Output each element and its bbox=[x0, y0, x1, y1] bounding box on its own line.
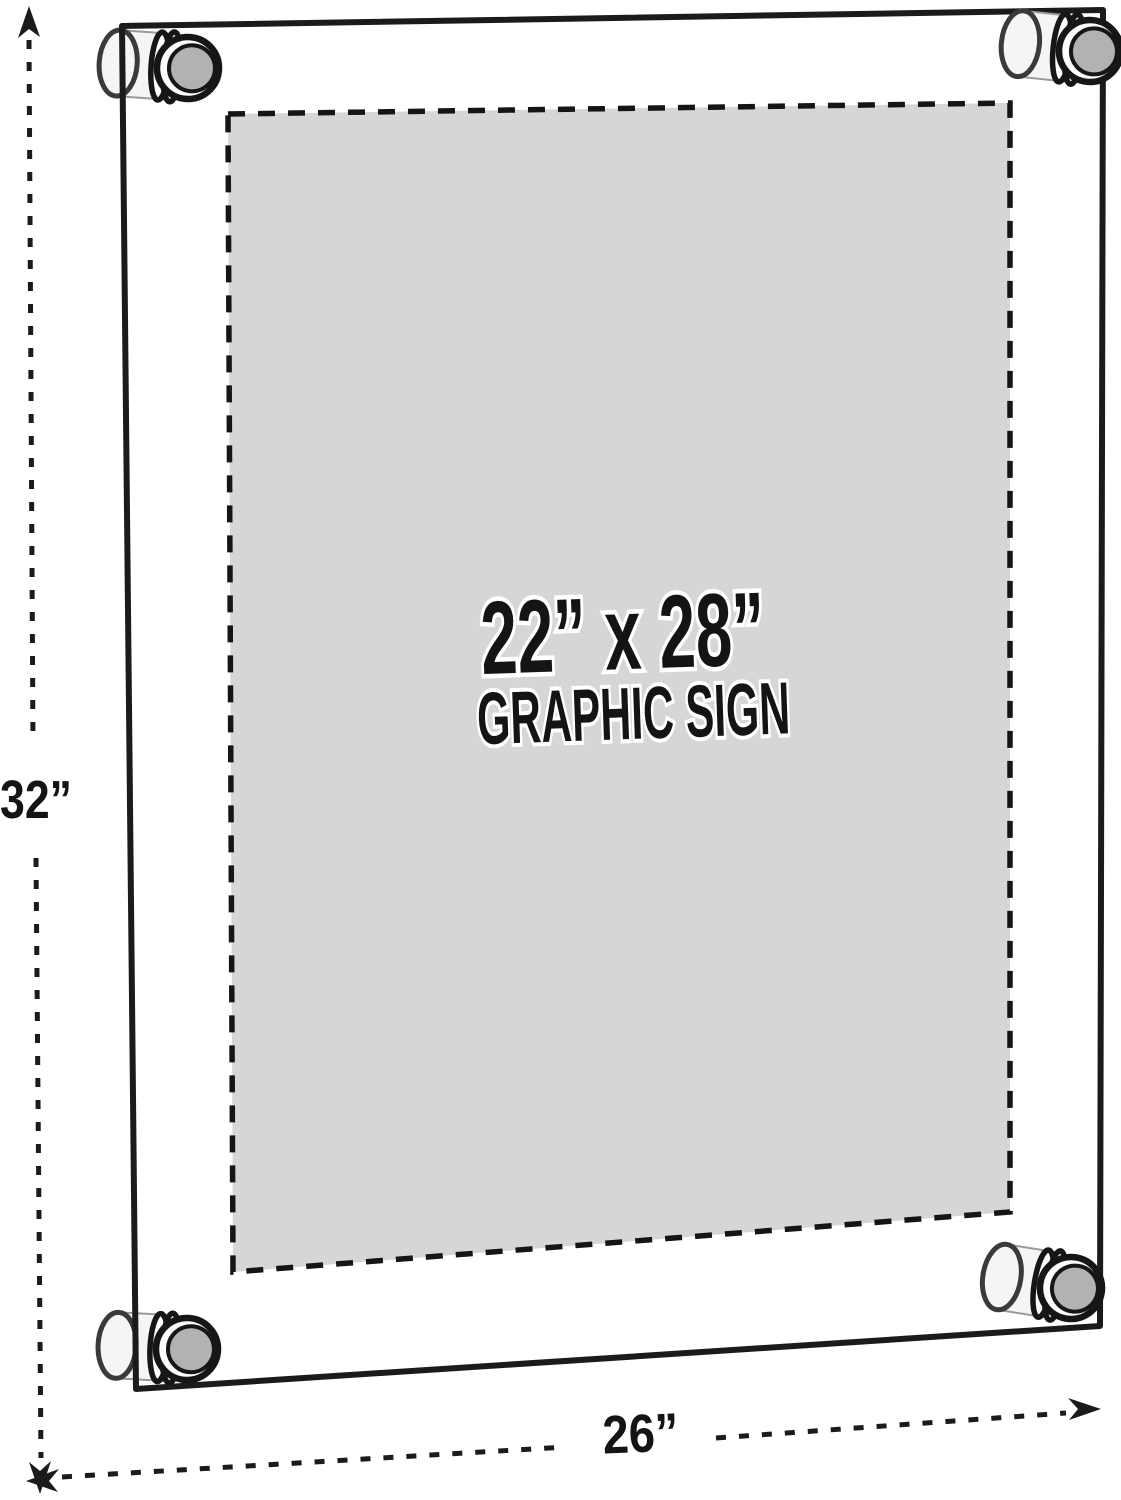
height-dimension-label: 32” bbox=[0, 770, 72, 830]
product-dimension-diagram: 22” x 28” GRAPHIC SIGN 32” 26” bbox=[0, 0, 1121, 1500]
width-dimension: 26” bbox=[26, 1398, 1101, 1492]
width-dimension-line-right bbox=[716, 1413, 1066, 1438]
width-dimension-label: 26” bbox=[601, 1402, 680, 1465]
sign-label-group: 22” x 28” GRAPHIC SIGN bbox=[472, 570, 791, 760]
diagram-canvas: 22” x 28” GRAPHIC SIGN 32” 26” bbox=[0, 0, 1121, 1500]
height-dimension: 32” bbox=[0, 6, 72, 1494]
width-dimension-line-left bbox=[62, 1447, 566, 1477]
standoff-top-left bbox=[97, 27, 222, 105]
arrow-right-icon bbox=[1068, 1398, 1101, 1420]
arrow-up-icon bbox=[18, 6, 40, 38]
sign-type-label: GRAPHIC SIGN bbox=[476, 666, 792, 760]
height-dimension-line-lower bbox=[36, 858, 41, 1458]
height-dimension-line-upper bbox=[29, 40, 33, 742]
standoff-top-right bbox=[998, 7, 1121, 89]
standoff-bottom-left bbox=[96, 1309, 219, 1385]
